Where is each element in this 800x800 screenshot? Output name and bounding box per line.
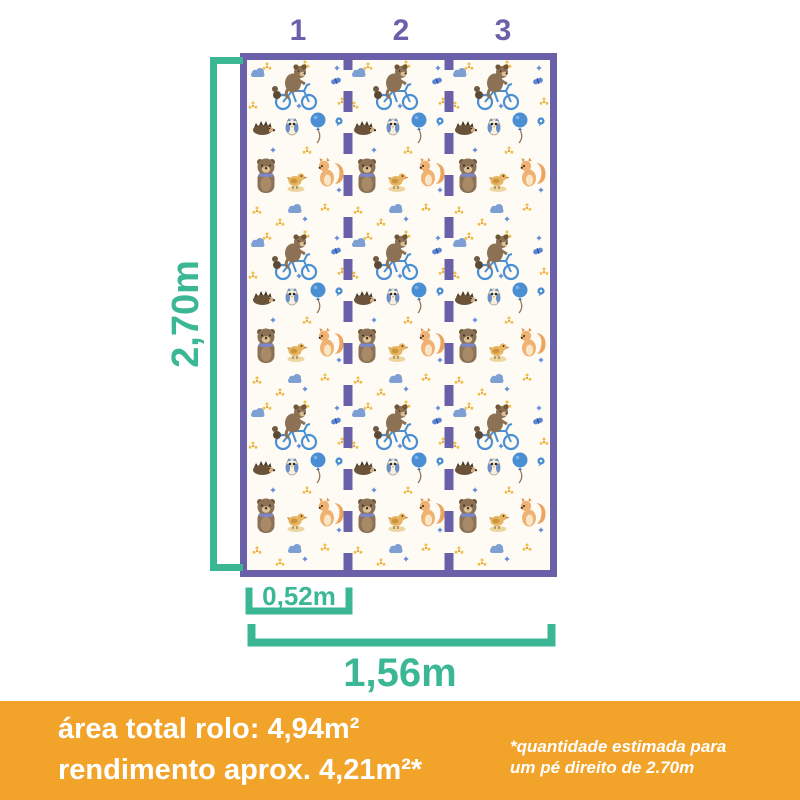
strip-number-2: 2 — [393, 16, 410, 46]
yield-text: rendimento aprox. 4,21m²* — [58, 750, 422, 791]
total-area-text: área total rolo: 4,94m² — [58, 709, 422, 750]
height-measurement-label: 2,70m — [167, 260, 205, 368]
wallpaper-size-infographic: 1 2 3 — [0, 0, 800, 800]
strip-width-measurement-label: 0,52m — [262, 583, 336, 609]
footer-band: área total rolo: 4,94m² rendimento aprox… — [0, 701, 800, 800]
strip-number-3: 3 — [495, 16, 512, 46]
footnote: *quantidade estimada para um pé direito … — [510, 736, 726, 778]
height-bracket — [214, 61, 244, 568]
roll-width-bracket — [252, 624, 552, 643]
wallpaper-panel — [240, 53, 557, 577]
roll-width-measurement-label: 1,56m — [343, 653, 456, 693]
strip-number-1: 1 — [290, 16, 307, 46]
footnote-line2: um pé direito de 2.70m — [510, 757, 726, 778]
roll-stats: área total rolo: 4,94m² rendimento aprox… — [58, 709, 422, 791]
footnote-line1: *quantidade estimada para — [510, 736, 726, 757]
wallpaper-pattern — [247, 60, 550, 570]
